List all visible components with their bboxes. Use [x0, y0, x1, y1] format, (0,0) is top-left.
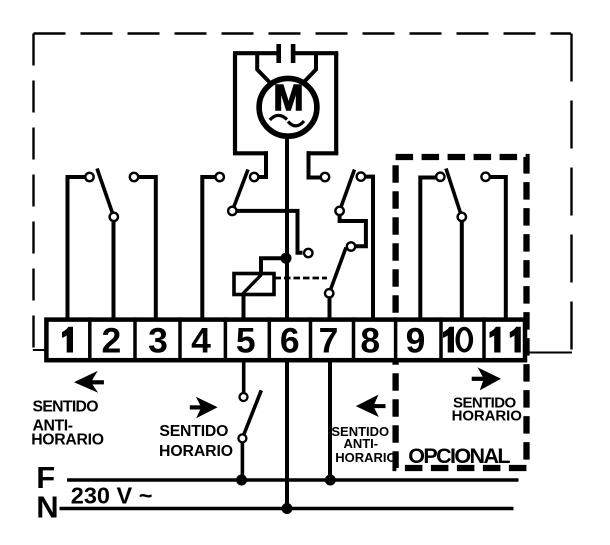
svg-text:SENTIDO: SENTIDO — [33, 399, 99, 416]
svg-text:7: 7 — [319, 321, 339, 361]
svg-text:3: 3 — [148, 321, 168, 361]
svg-text:HORARIO: HORARIO — [452, 407, 523, 424]
svg-text:4: 4 — [191, 321, 211, 361]
svg-text:OPCIONAL: OPCIONAL — [408, 444, 510, 468]
svg-text:HORARIO: HORARIO — [159, 443, 233, 460]
svg-text:N: N — [36, 490, 58, 525]
svg-text:6: 6 — [280, 321, 300, 361]
svg-text:5: 5 — [236, 321, 256, 361]
svg-text:HORARIO: HORARIO — [31, 432, 104, 449]
svg-text:SENTIDO: SENTIDO — [159, 423, 228, 440]
svg-text:2: 2 — [102, 321, 122, 361]
svg-text:HORARIO: HORARIO — [335, 450, 396, 465]
svg-text:230 V ~: 230 V ~ — [71, 483, 153, 509]
svg-text:M: M — [274, 77, 304, 118]
svg-text:8: 8 — [360, 321, 380, 361]
svg-text:ANTI-: ANTI- — [343, 436, 378, 451]
svg-text:9: 9 — [406, 321, 426, 361]
